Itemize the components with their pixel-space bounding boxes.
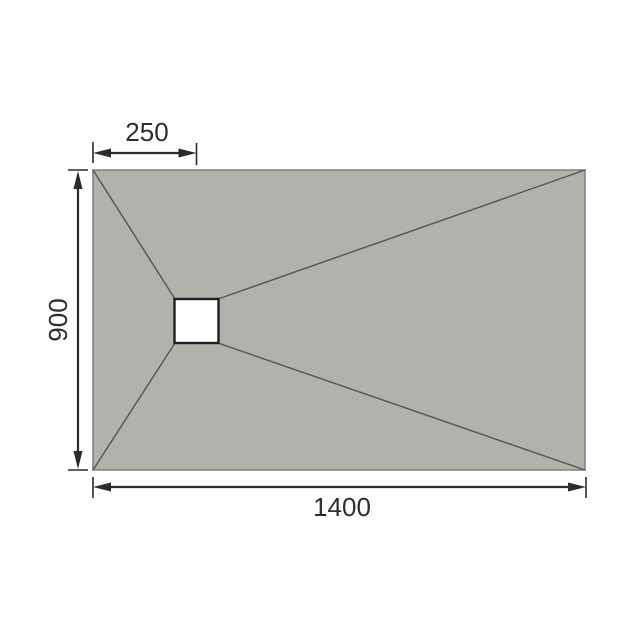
- arrowhead-up-icon: [74, 171, 83, 189]
- drain-square: [175, 299, 219, 343]
- dimension-tray-width: 1400: [93, 477, 586, 522]
- arrowhead-left-icon: [93, 483, 111, 492]
- arrowhead-down-icon: [74, 451, 83, 469]
- dimension-label-drain-offset: 250: [125, 117, 168, 147]
- dimension-label-tray-depth: 900: [43, 298, 73, 341]
- dimension-tray-depth: 900: [43, 170, 88, 470]
- drawing-canvas: 250 900 1400: [0, 0, 640, 640]
- arrowhead-left-icon: [93, 149, 111, 158]
- arrowhead-right-icon: [568, 483, 586, 492]
- tray-outline: [93, 170, 585, 470]
- arrowhead-right-icon: [179, 149, 197, 158]
- shower-tray-technical-drawing: 250 900 1400: [0, 0, 640, 640]
- dimension-drain-offset: 250: [93, 117, 197, 165]
- dimension-label-tray-width: 1400: [313, 492, 371, 522]
